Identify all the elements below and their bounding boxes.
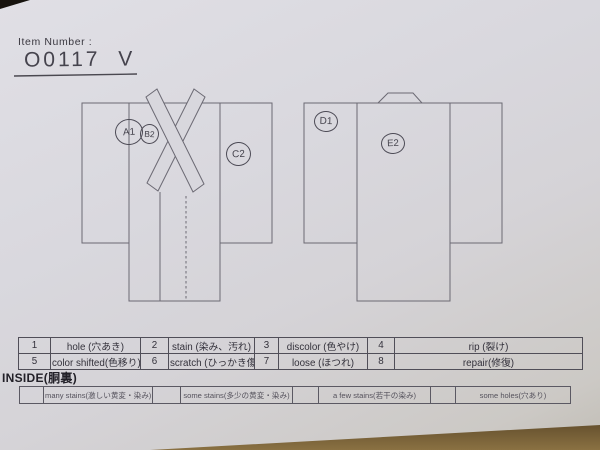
back-collar xyxy=(378,93,422,103)
defect-label-cell: hole (穴あき) xyxy=(51,338,141,354)
defect-table-row: 5 color shifted(色移り) 6 scratch (ひっかき傷) 7… xyxy=(19,354,583,370)
inside-checkbox-cell xyxy=(293,387,319,404)
inside-option-cell: many stains(激しい黄変・染み) xyxy=(44,387,153,404)
defect-code-cell: 8 xyxy=(368,354,395,370)
defect-code-cell: 5 xyxy=(19,354,51,370)
defect-label-cell: repair(修復) xyxy=(395,354,583,370)
inside-option-cell: some stains(多少の黄変・染み) xyxy=(181,387,293,404)
defect-label-cell: stain (染み、汚れ) xyxy=(169,338,255,354)
inside-checkbox-cell xyxy=(431,387,456,404)
inside-section-title: INSIDE(胴裏) xyxy=(2,369,77,386)
front-right-sleeve xyxy=(220,103,272,243)
inside-table-row: many stains(激しい黄変・染み) some stains(多少の黄変・… xyxy=(20,387,571,404)
defect-label-cell: rip (裂け) xyxy=(395,338,583,354)
defect-code-cell: 3 xyxy=(255,338,279,354)
defect-code-cell: 4 xyxy=(368,338,395,354)
item-number-underline xyxy=(14,74,137,76)
kimono-diagrams xyxy=(0,0,600,450)
inside-checkbox-cell xyxy=(20,387,44,404)
back-body xyxy=(357,103,450,301)
defect-table-row: 1 hole (穴あき) 2 stain (染み、汚れ) 3 discolor … xyxy=(19,338,583,354)
back-right-sleeve xyxy=(450,103,502,243)
defect-code-cell: 2 xyxy=(141,338,169,354)
defect-code-cell: 7 xyxy=(255,354,279,370)
defect-label-cell: loose (ほつれ) xyxy=(279,354,368,370)
inside-option-cell: a few stains(若干の染み) xyxy=(319,387,431,404)
defect-code-cell: 6 xyxy=(141,354,169,370)
inside-checkbox-cell xyxy=(153,387,181,404)
defect-label-cell: scratch (ひっかき傷) xyxy=(169,354,255,370)
kimono-front-diagram xyxy=(82,89,272,301)
defect-label-cell: discolor (色やけ) xyxy=(279,338,368,354)
inside-condition-table: many stains(激しい黄変・染み) some stains(多少の黄変・… xyxy=(19,386,571,404)
inside-option-cell: some holes(穴あり) xyxy=(456,387,571,404)
defect-code-cell: 1 xyxy=(19,338,51,354)
defect-code-table: 1 hole (穴あき) 2 stain (染み、汚れ) 3 discolor … xyxy=(18,337,583,370)
defect-label-cell: color shifted(色移り) xyxy=(51,354,141,370)
